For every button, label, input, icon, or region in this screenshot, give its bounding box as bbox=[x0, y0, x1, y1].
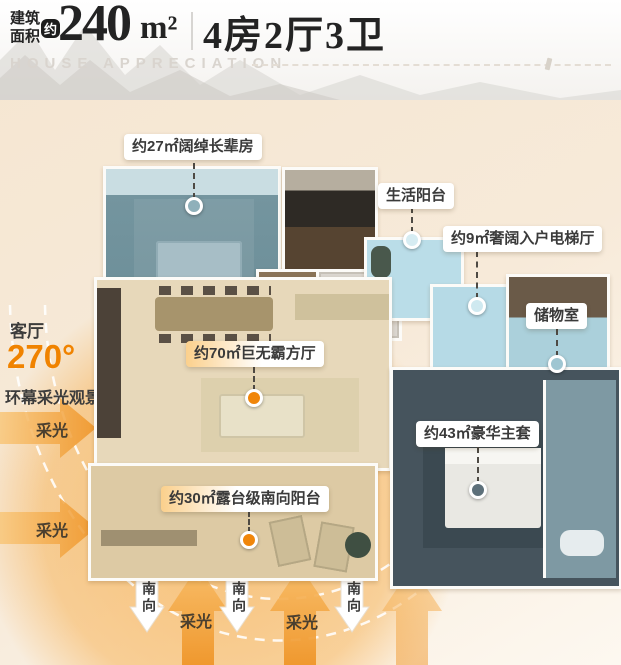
daylight-text-2: 采光 bbox=[36, 517, 68, 541]
leader-elder bbox=[193, 163, 195, 199]
label-elder-room: 约27㎡阔绰长辈房 bbox=[124, 134, 262, 160]
room-master-suite bbox=[390, 367, 621, 589]
anchor-dot-storage bbox=[548, 355, 566, 373]
balcony-plant bbox=[345, 532, 371, 558]
label-elevator-hall: 约9㎡奢阔入户电梯厅 bbox=[443, 226, 602, 252]
label-living-hall: 约70㎡巨无霸方厅 bbox=[186, 341, 324, 367]
anchor-dot-south-balcony bbox=[240, 531, 258, 549]
label-master-suite: 约43㎡豪华主套 bbox=[416, 421, 539, 447]
label-south-balcony: 约30㎡露台级南向阳台 bbox=[161, 486, 329, 512]
dashed-rule bbox=[252, 64, 611, 66]
south-facing-text-3: 南向 bbox=[344, 581, 364, 615]
unit-spec: 4房2厅3卫 bbox=[203, 4, 386, 59]
anchor-dot-life-balcony bbox=[403, 231, 421, 249]
leader-living-hall bbox=[253, 367, 255, 391]
anchor-dot-living-hall bbox=[245, 389, 263, 407]
anchor-dot-elder bbox=[185, 197, 203, 215]
poster: 建筑 面积 约 240 m² 4房2厅3卫 HOUSE APPRECIATION bbox=[0, 0, 621, 665]
building-area-label-bottom: 面积 bbox=[10, 29, 40, 47]
master-bed-pillow bbox=[445, 448, 541, 464]
header: 建筑 面积 约 240 m² 4房2厅3卫 HOUSE APPRECIATION bbox=[0, 0, 621, 100]
leader-life-balcony bbox=[411, 207, 413, 233]
room-living-hall bbox=[94, 277, 392, 471]
header-divider bbox=[191, 12, 193, 50]
dining-chairs-top bbox=[159, 286, 271, 295]
anchor-dot-elevator-hall bbox=[468, 297, 486, 315]
label-life-balcony: 生活阳台 bbox=[378, 183, 454, 209]
south-facing-text-2: 南向 bbox=[229, 581, 249, 615]
leader-south-balcony bbox=[248, 511, 250, 533]
leader-storage bbox=[556, 329, 558, 357]
daylight-text-1: 采光 bbox=[36, 417, 68, 441]
callout-degree-270: 270° bbox=[7, 338, 75, 376]
master-bathroom bbox=[543, 380, 616, 578]
life-balcony-plant bbox=[371, 246, 391, 278]
balcony-lounger-1 bbox=[269, 515, 312, 567]
kitchen-island bbox=[295, 294, 389, 320]
tagline: HOUSE APPRECIATION bbox=[10, 55, 287, 72]
building-area-label: 建筑 面积 bbox=[10, 11, 40, 46]
master-bathtub bbox=[560, 530, 604, 556]
anchor-dot-master-suite bbox=[469, 481, 487, 499]
label-storage-room: 储物室 bbox=[526, 303, 587, 329]
dining-table bbox=[155, 297, 273, 331]
south-facing-text-1: 南向 bbox=[139, 581, 159, 615]
living-tv-wall bbox=[97, 288, 121, 438]
leader-master-suite bbox=[477, 447, 479, 483]
area-unit: m² bbox=[140, 10, 177, 47]
balcony-bench bbox=[101, 530, 197, 546]
room-south-balcony bbox=[88, 463, 378, 581]
daylight-text-3: 采光 bbox=[180, 608, 212, 632]
daylight-text-4: 采光 bbox=[286, 609, 318, 633]
building-area-label-top: 建筑 bbox=[10, 11, 40, 29]
callout-living-subtitle: 环幕采光观景 bbox=[5, 384, 101, 408]
leader-elevator-hall bbox=[476, 251, 478, 299]
area-number: 240 bbox=[58, 0, 130, 53]
